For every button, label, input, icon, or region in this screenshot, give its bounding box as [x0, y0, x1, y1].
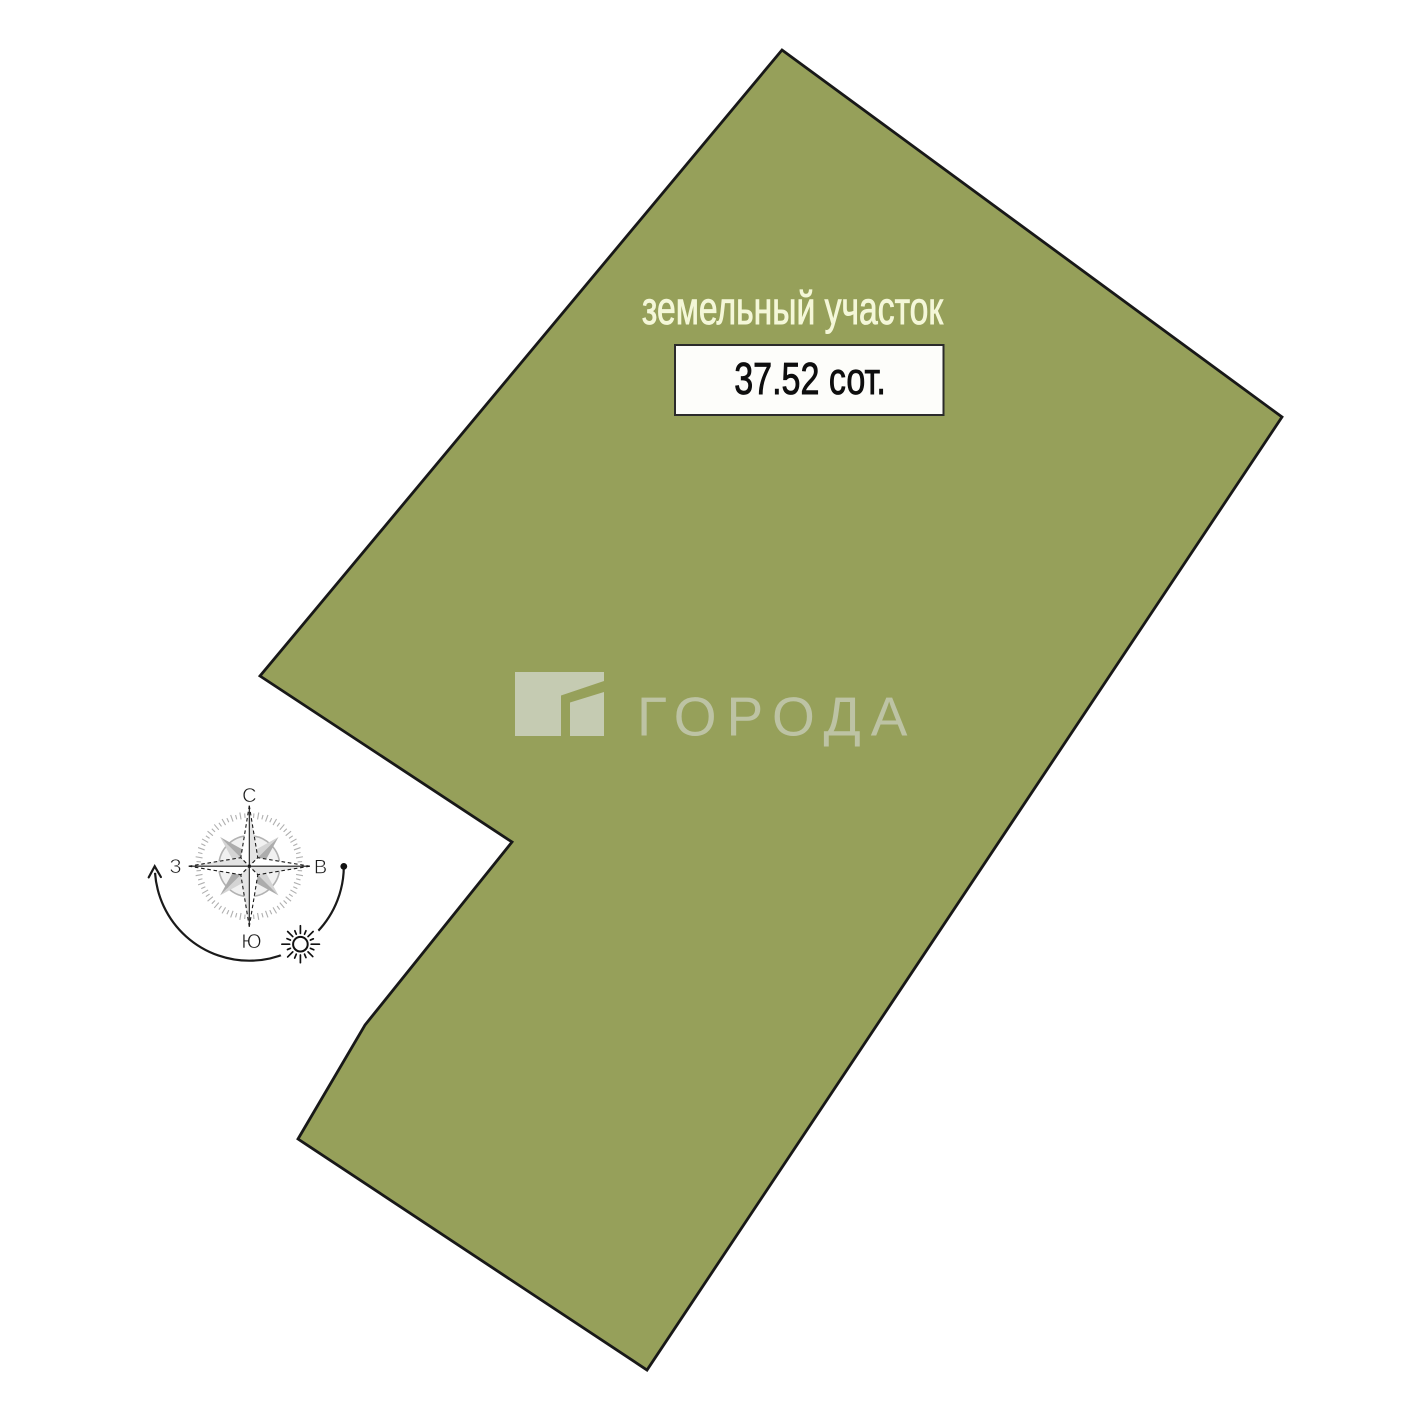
svg-text:Ю: Ю [241, 931, 261, 953]
svg-text:З: З [169, 856, 181, 878]
svg-text:С: С [242, 785, 256, 807]
svg-text:37.52 сот.: 37.52 сот. [734, 353, 886, 404]
svg-text:ГОРОДА: ГОРОДА [637, 686, 917, 748]
svg-text:В: В [314, 857, 327, 879]
svg-text:земельный участок: земельный участок [642, 282, 944, 334]
